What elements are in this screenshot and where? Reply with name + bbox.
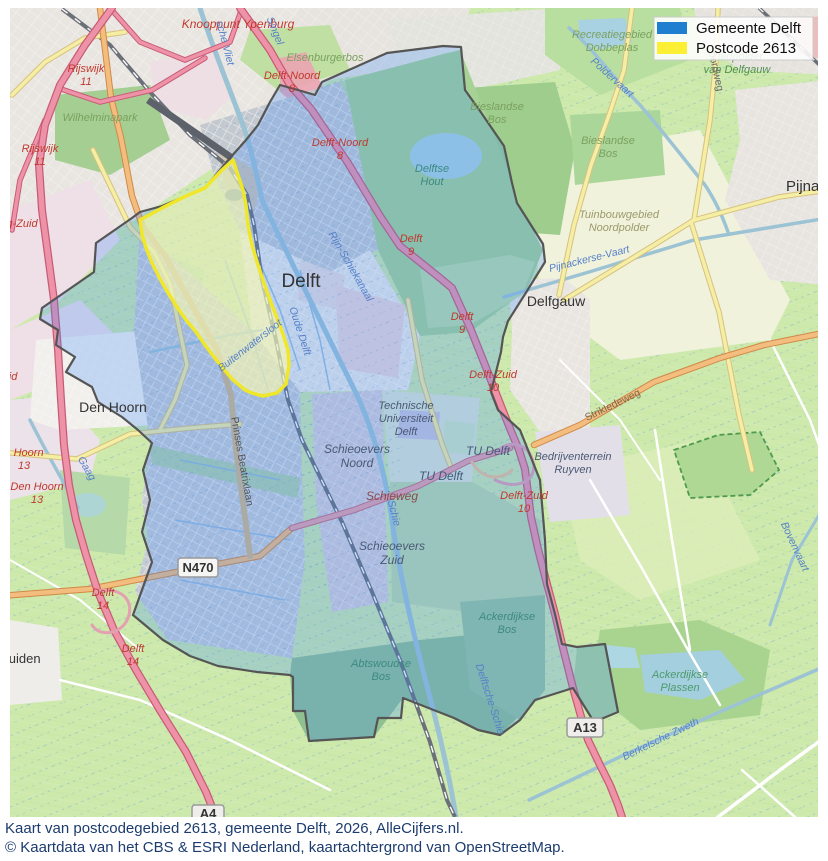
svg-text:Plassen: Plassen [660,682,699,694]
svg-text:Recreatiegebied: Recreatiegebied [572,29,653,41]
svg-text:Zuid: Zuid [379,553,404,567]
svg-text:Ackerdijkse: Ackerdijkse [651,669,708,681]
svg-text:Universiteit: Universiteit [379,413,434,425]
svg-text:14: 14 [97,600,109,612]
svg-text:13: 13 [18,460,31,472]
svg-text:Rijswijk: Rijswijk [22,143,59,155]
svg-text:9: 9 [459,324,465,336]
svg-text:Bedrijventerrein: Bedrijventerrein [534,451,611,463]
svg-text:N470: N470 [182,560,213,575]
svg-text:Delft: Delft [451,311,475,323]
svg-text:Postcode 2613: Postcode 2613 [696,40,796,57]
svg-text:Pijnacker: Pijnacker [786,178,828,195]
svg-text:11: 11 [34,156,45,168]
svg-text:Delft: Delft [92,587,116,599]
svg-text:Bieslandse: Bieslandse [470,101,524,113]
svg-text:11: 11 [80,76,91,88]
svg-text:8: 8 [337,150,344,162]
svg-text:Elsenburgerbos: Elsenburgerbos [286,52,364,64]
svg-text:Bos: Bos [498,624,517,636]
svg-text:Bieslandse: Bieslandse [581,135,635,147]
svg-text:Den Hoorn: Den Hoorn [79,399,147,415]
svg-text:Bos: Bos [488,114,507,126]
svg-text:TU Delft: TU Delft [419,469,464,483]
svg-text:Noordpolder: Noordpolder [589,222,651,234]
svg-text:Schieoevers: Schieoevers [359,539,425,553]
svg-text:Delft-Noord: Delft-Noord [312,137,369,149]
svg-text:Delft-Zuid: Delft-Zuid [469,369,518,381]
svg-text:Bos: Bos [372,671,391,683]
svg-text:Ruyven: Ruyven [554,464,591,476]
svg-text:Delft: Delft [281,271,321,292]
svg-text:10: 10 [518,503,531,515]
svg-text:Delft-Zuid: Delft-Zuid [500,490,549,502]
svg-text:Den Hoorn: Den Hoorn [10,481,63,493]
svg-text:Kaart van postcodegebied 2613,: Kaart van postcodegebied 2613, gemeente … [5,820,464,837]
svg-text:uid: uid [3,371,19,383]
svg-text:8: 8 [289,83,296,95]
svg-text:Ackerdijkse: Ackerdijkse [478,611,535,623]
svg-text:Wilhelminapark: Wilhelminapark [62,112,138,124]
svg-text:Noord: Noord [341,456,374,470]
svg-text:Delft: Delft [400,233,424,245]
svg-text:Hout: Hout [420,176,444,188]
svg-text:Delftse: Delftse [415,163,449,175]
svg-text:Rijswijk: Rijswijk [68,63,105,75]
svg-text:A4: A4 [200,806,217,821]
svg-text:9: 9 [408,246,414,258]
svg-text:Abtswoudse: Abtswoudse [350,658,411,670]
svg-text:Schieoevers: Schieoevers [324,442,390,456]
svg-text:Delft: Delft [122,643,146,655]
svg-text:Schipluiden: Schipluiden [0,651,41,666]
svg-text:© Kaartdata van het CBS & ESRI: © Kaartdata van het CBS & ESRI Nederland… [5,839,565,856]
svg-text:g-Zuid: g-Zuid [6,218,38,230]
svg-text:Delfgauw: Delfgauw [527,293,586,309]
svg-text:Dobbeplas: Dobbeplas [586,42,639,54]
svg-text:TU Delft: TU Delft [466,444,511,458]
svg-text:Tuinbouwgebied: Tuinbouwgebied [579,209,660,221]
svg-text:Gemeente Delft: Gemeente Delft [696,20,802,37]
svg-text:13: 13 [31,494,44,506]
svg-text:10: 10 [487,382,500,394]
svg-text:n Hoorn: n Hoorn [4,447,43,459]
svg-text:Delft: Delft [395,426,419,438]
svg-text:A13: A13 [573,720,597,735]
svg-text:Bos: Bos [599,148,618,160]
svg-text:Technische: Technische [378,400,433,412]
svg-text:Delft-Noord: Delft-Noord [264,70,321,82]
svg-text:Schieweg: Schieweg [366,489,418,503]
svg-text:14: 14 [127,656,139,668]
